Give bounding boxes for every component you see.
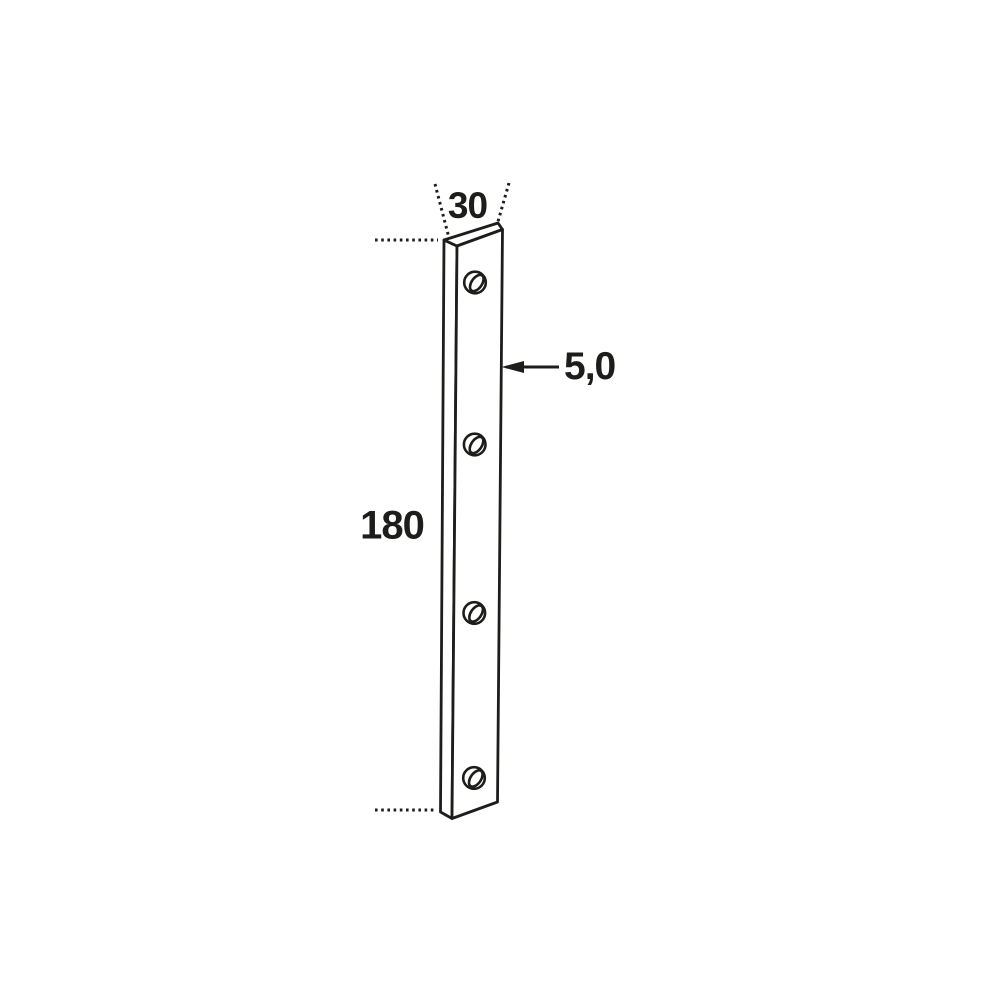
plate-body bbox=[441, 223, 503, 819]
length-dimension-label: 180 bbox=[360, 504, 424, 548]
thickness-dimension-label: 5,0 bbox=[564, 345, 616, 388]
width-extension-line-right bbox=[497, 183, 509, 225]
drawing-canvas: 30 5,0 180 bbox=[0, 0, 1000, 1000]
technical-drawing: 30 5,0 180 bbox=[0, 0, 1000, 1000]
arrow-head bbox=[502, 361, 525, 373]
plate-front-face bbox=[452, 230, 503, 819]
width-extension-line-left bbox=[435, 184, 449, 238]
thickness-dimension-arrow bbox=[502, 361, 560, 373]
width-dimension-label: 30 bbox=[448, 185, 488, 226]
